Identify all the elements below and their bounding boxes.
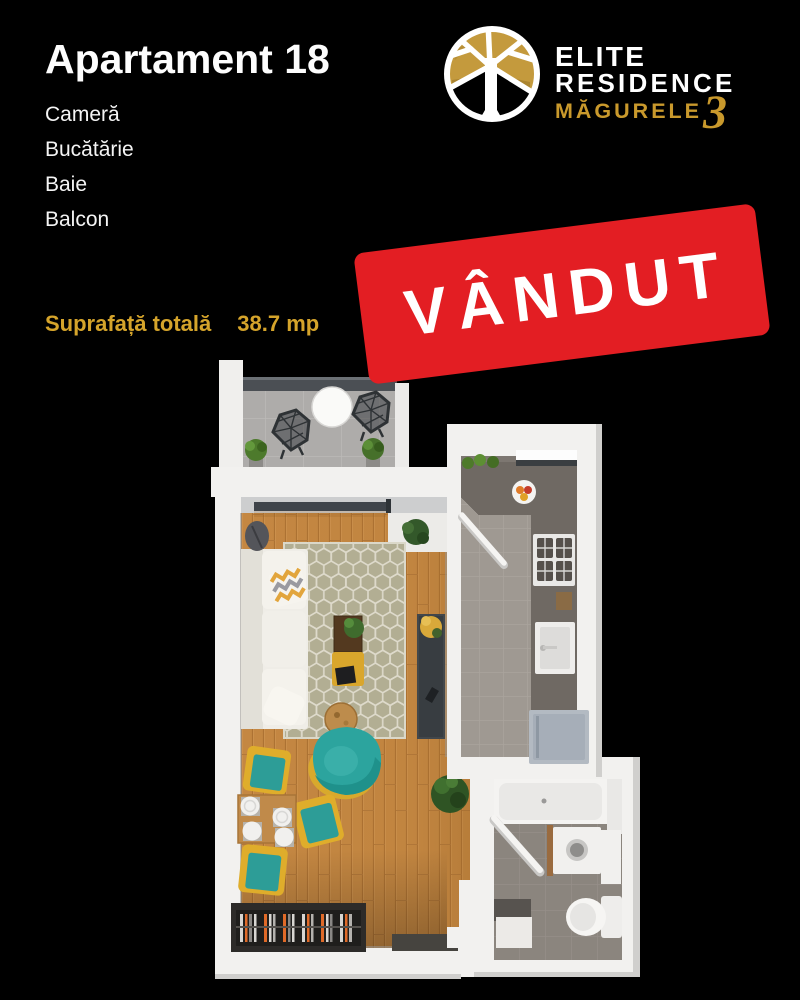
svg-text:3: 3 (702, 86, 727, 139)
svg-text:MĂGURELE: MĂGURELE (555, 98, 702, 123)
